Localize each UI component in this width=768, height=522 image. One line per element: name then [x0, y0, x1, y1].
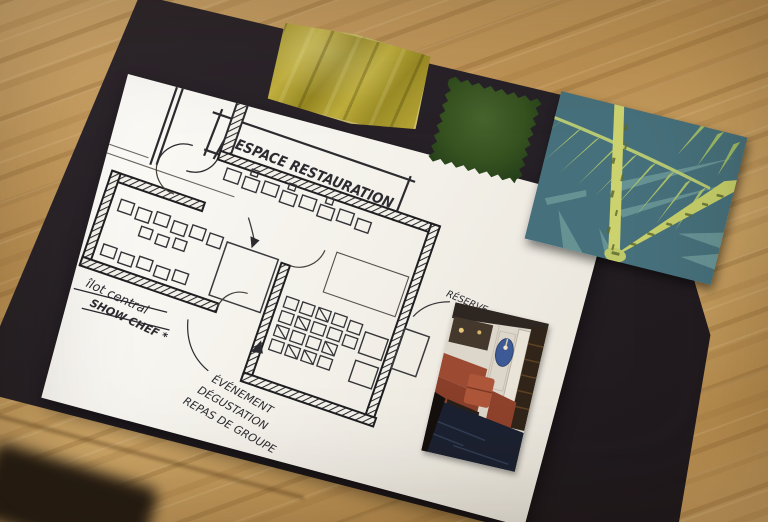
plan-walls: [61, 120, 442, 427]
ilot-label: îlot central SHOW CHEF *: [66, 272, 179, 345]
mood-board-photo: ESPACE RESTAURATION: [0, 0, 768, 522]
arrow-icon: [247, 236, 260, 250]
